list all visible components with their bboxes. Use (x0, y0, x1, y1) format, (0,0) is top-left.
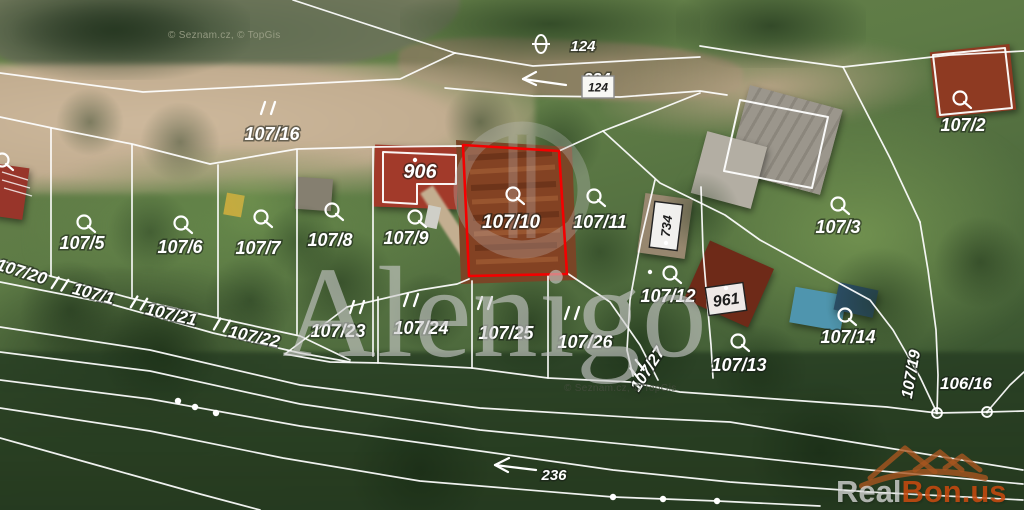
copyright-top: © Seznam.cz, © TopGis (168, 30, 281, 41)
logo-text-us: .us (962, 474, 1007, 509)
boundary-dot (192, 404, 198, 410)
roof-ridge-mark (2, 180, 30, 188)
symbol-tail (964, 102, 971, 108)
tick (261, 102, 265, 114)
tick (271, 102, 275, 114)
parcel-label: 107/7 (235, 238, 281, 258)
parcel-label: 107/19 (899, 349, 924, 400)
cadastral-overlay: 107/16107/5107/6107/7107/8107/9107/10107… (0, 0, 1024, 510)
parcel-label: 107/11 (573, 212, 627, 232)
parcel-label: 107/10 (482, 212, 541, 233)
parcel-boundary-line (603, 93, 700, 131)
vertex-ring-center (936, 412, 939, 415)
symbol-tail (336, 214, 343, 220)
logo-text-real: Real (836, 474, 901, 509)
roof-ridge-mark (4, 188, 32, 196)
cadastral-map-screenshot: 107/16107/5107/6107/7107/8107/9107/10107… (0, 0, 1024, 510)
highlighted-parcel (463, 145, 567, 276)
parcel-label: 107/23 (310, 321, 365, 341)
parcel-label: 107/14 (820, 327, 875, 347)
parcel-boundary-line (701, 187, 713, 378)
ownership-tick-symbol (261, 102, 275, 114)
landuse-symbol (832, 198, 850, 215)
symbol-tail (742, 345, 749, 351)
parcel-label: 124 (570, 38, 596, 55)
ownership-tick-symbol (565, 307, 579, 319)
point-marker (664, 241, 668, 245)
parcel-boundary-line (700, 46, 843, 67)
parcel-label: 107/22 (227, 322, 282, 352)
parcel-label: 107/3 (815, 217, 860, 237)
ownership-tick-symbol (404, 294, 418, 306)
parcel-boundary-line (987, 372, 1024, 412)
parcel-label: 906 (403, 161, 437, 183)
parcel-boundary-line (293, 0, 455, 53)
point-marker (413, 158, 417, 162)
tick (478, 297, 482, 309)
landuse-symbol (326, 204, 344, 221)
landuse-symbol (954, 92, 972, 109)
tick (414, 294, 418, 306)
ownership-tick-symbol (478, 297, 492, 309)
symbol-tail (265, 221, 272, 227)
parcel-label: 107/24 (393, 318, 448, 338)
parcel-label: 107/1 (70, 279, 116, 308)
direction-arrow-head (523, 72, 536, 85)
symbol-tail (6, 164, 13, 170)
symbol-tail (674, 277, 681, 283)
tick (214, 318, 220, 331)
symbol-tail (419, 221, 426, 227)
building-outline (724, 100, 828, 188)
landuse-symbol (409, 211, 427, 228)
landuse-symbol (175, 217, 193, 234)
boundary-dot (714, 498, 720, 504)
landuse-symbol (839, 309, 857, 326)
symbol-tail (185, 227, 192, 233)
building-number-box: 124 (582, 76, 614, 98)
landuse-symbol (664, 267, 682, 284)
point-marker (724, 286, 728, 290)
landuse-symbol (255, 211, 273, 228)
parcel-label: 106/16 (940, 374, 993, 393)
realbonus-wordmark: RealBon.us (836, 474, 1007, 510)
parcel-boundary-line (0, 408, 820, 506)
parcel-label: 107/2 (940, 115, 985, 135)
symbol-tail (849, 319, 856, 325)
building-outline (933, 48, 1012, 115)
tick (404, 294, 408, 306)
parcel-label: 107/12 (640, 286, 695, 306)
landuse-symbol (78, 216, 96, 233)
symbol-tail (88, 226, 95, 232)
boundary-dot (175, 398, 181, 404)
parcel-label: 107/13 (711, 355, 766, 375)
parcel-label: 107/6 (157, 237, 203, 257)
boundary-dot (660, 496, 666, 502)
parcel-boundary-line (0, 53, 455, 92)
parcel-label: 107/21 (144, 300, 199, 330)
tick (575, 307, 579, 319)
parcel-boundary-line (0, 438, 260, 510)
parcel-label: 107/8 (307, 230, 352, 250)
realbonus-logo: RealBon.us (830, 440, 1020, 508)
boundary-dot (213, 410, 219, 416)
watercourse-symbol (532, 35, 550, 53)
parcel-label: 107/26 (557, 332, 613, 352)
parcel-boundary-line (843, 67, 920, 222)
parcel-label: 107/5 (59, 233, 105, 253)
boundary-dot (610, 494, 616, 500)
symbol-tail (598, 200, 605, 206)
symbol-tail (842, 208, 849, 214)
parcel-boundary-line (937, 411, 1024, 413)
parcel-label: 107/25 (478, 323, 534, 343)
parcel-boundary-line (0, 117, 462, 164)
logo-text-bon: Bon (901, 474, 961, 509)
copyright-bottom: © Seznam.cz, © TopGis (564, 383, 677, 394)
landuse-symbol (588, 190, 606, 207)
vertex-ring-center (986, 411, 989, 414)
parcel-label: 107/16 (244, 124, 300, 144)
tick (488, 297, 492, 309)
parcel-label: 107/9 (383, 228, 428, 248)
roof-ridge-mark (2, 172, 28, 180)
ownership-tick-symbol (131, 296, 147, 311)
landuse-symbol (732, 335, 750, 352)
point-marker (648, 270, 652, 274)
building-number: 734 (658, 214, 676, 238)
building-number: 124 (588, 81, 608, 95)
tick (565, 307, 569, 319)
landuse-symbol (0, 154, 13, 171)
parcel-label: 236 (540, 467, 567, 484)
